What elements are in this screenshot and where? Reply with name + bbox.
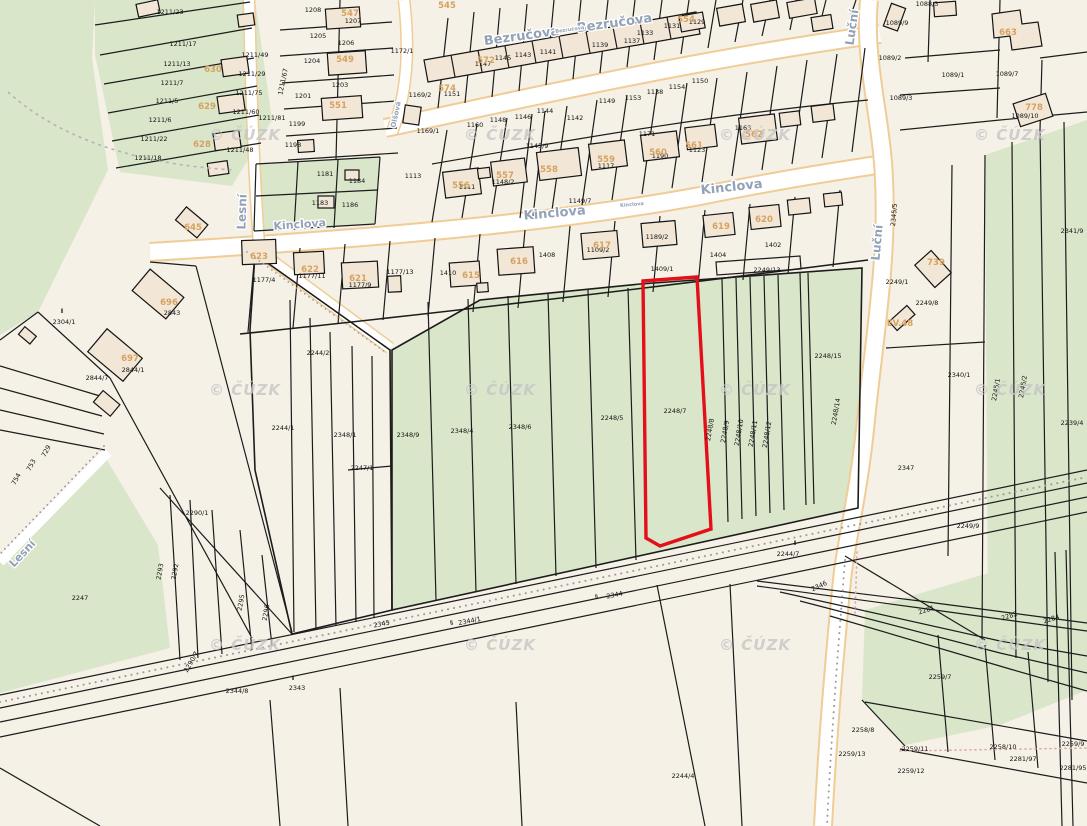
parcel-label: 2259/9 xyxy=(1062,740,1085,748)
parcel-label: 2248/15 xyxy=(814,352,841,360)
building-label: 617 xyxy=(593,241,611,251)
parcel-label: 2244/7 xyxy=(777,550,800,558)
parcel-label: 1211/5 xyxy=(156,97,179,105)
parcel-label: 2348/6 xyxy=(509,423,532,431)
parcel-label: 1177/4 xyxy=(253,276,276,284)
parcel-label: 1211/6 xyxy=(149,116,172,124)
parcel-label: 2244/4 xyxy=(672,772,695,780)
parcel-label: 1089/2 xyxy=(879,54,902,62)
parcel-label: 1211/17 xyxy=(169,40,196,48)
parcel-label: 2348/1 xyxy=(334,431,357,439)
parcel-label: 1184 xyxy=(349,177,366,185)
parcel-label: 2247 xyxy=(72,594,89,602)
building-label: 622 xyxy=(301,265,319,275)
parcel-label: 1408 xyxy=(539,251,556,259)
street-label: Lesní xyxy=(234,193,249,230)
parcel-label: 2843 xyxy=(164,309,181,317)
building-label: 554 xyxy=(677,15,695,25)
parcel-label: 2258/10 xyxy=(989,743,1016,751)
parcel-label: 1211/48 xyxy=(226,146,253,154)
building-label: 645 xyxy=(184,223,202,233)
building-label: 549 xyxy=(336,55,354,65)
parcel-label: 2259/11 xyxy=(901,745,928,753)
parcel-label: Ⅱ xyxy=(793,539,796,547)
watermark-label: © ČÚZK xyxy=(974,634,1046,654)
watermark-label: © ČÚZK xyxy=(209,634,281,654)
building-label: 558 xyxy=(540,165,558,175)
building-558 xyxy=(536,148,581,181)
parcel-label: 1198 xyxy=(285,141,302,149)
parcel-label: 2248/7 xyxy=(664,407,687,415)
parcel-label: 2249/1 xyxy=(886,278,909,286)
building-label: 697 xyxy=(121,354,139,364)
cadastral-map-viewport[interactable]: 1211/231211/171211/131211/71211/51211/61… xyxy=(0,0,1087,826)
parcel-label: 1088/3 xyxy=(916,0,939,8)
parcel-label: 2259/13 xyxy=(838,750,865,758)
parcel-label: 2344/8 xyxy=(226,687,249,695)
parcel-label: 2281/95 xyxy=(1059,764,1086,772)
parcel-label: 2304/1 xyxy=(53,318,76,326)
parcel-label: Ⅱ xyxy=(291,674,294,682)
parcel-label: Ⅱ xyxy=(60,307,63,315)
parcel-label: 1149 xyxy=(599,97,616,105)
watermark-label: © ČÚZK xyxy=(974,379,1046,399)
parcel-label: 1145 xyxy=(495,54,512,62)
parcel-label: 2341/9 xyxy=(1061,227,1084,235)
parcel-label: 1204 xyxy=(304,57,321,65)
parcel-label: 1211/7 xyxy=(161,79,184,87)
parcel-label: 1138 xyxy=(647,88,664,96)
parcel-label: 2247/1 xyxy=(351,464,374,472)
parcel-label: 1404 xyxy=(710,251,727,259)
parcel-label: 1154 xyxy=(669,83,686,91)
building-label: 696 xyxy=(160,298,178,308)
parcel-label: 1189/2 xyxy=(646,233,669,241)
parcel-label: 1144 xyxy=(537,107,554,115)
parcel-label: 1402 xyxy=(765,241,782,249)
building-label: 621 xyxy=(349,274,367,284)
cadastral-map[interactable]: 1211/231211/171211/131211/71211/51211/61… xyxy=(0,0,1087,826)
parcel-label: 1211/75 xyxy=(235,89,262,97)
parcel-label: 2258/8 xyxy=(852,726,875,734)
building-label: 556 xyxy=(452,181,470,191)
parcel-label: 1208 xyxy=(305,6,322,14)
building-label: 572 xyxy=(477,56,495,66)
building-label: EV.48 xyxy=(887,319,913,329)
parcel-label: 1133 xyxy=(637,29,654,37)
parcel-label: 1199 xyxy=(289,120,306,128)
building-label: 739 xyxy=(927,258,945,268)
parcel-label: 1148 xyxy=(490,116,507,124)
parcel-label: 1211/13 xyxy=(163,60,190,68)
parcel-label: 2844/1 xyxy=(122,366,145,374)
parcel-label: 1169/2 xyxy=(409,91,432,99)
watermark-label: © ČÚZK xyxy=(209,379,281,399)
parcel-label: 2249/8 xyxy=(916,299,939,307)
parcel-label: 1089/1 xyxy=(942,71,965,79)
parcel-label: 1211/60 xyxy=(232,108,259,116)
building-label: 630 xyxy=(204,65,222,75)
parcel-label: 1150 xyxy=(692,77,709,85)
watermark-label: © ČÚZK xyxy=(464,379,536,399)
watermark-label: © ČÚZK xyxy=(464,634,536,654)
parcel-label: 2249/9 xyxy=(957,522,980,530)
watermark-label: © ČÚZK xyxy=(464,124,536,144)
parcel-label: 2239/4 xyxy=(1061,419,1084,427)
watermark-label: © ČÚZK xyxy=(719,124,791,144)
parcel-label: 1211/81 xyxy=(258,114,285,122)
parcel-label: 1172/1 xyxy=(391,47,414,55)
parcel-label: 2347 xyxy=(898,464,915,472)
parcel-label: 2244/2 xyxy=(307,349,330,357)
parcel-label: 1186 xyxy=(342,201,359,209)
parcel-label: 1410 xyxy=(440,269,457,277)
parcel-label: 2281/97 xyxy=(1009,755,1036,763)
watermark-label: © ČÚZK xyxy=(719,634,791,654)
parcel-label: 1409/1 xyxy=(651,265,674,273)
parcel-label: 1201 xyxy=(295,92,312,100)
parcel-label: 1089/3 xyxy=(890,94,913,102)
parcel-label: 1139 xyxy=(592,41,609,49)
building-label: 629 xyxy=(198,102,216,112)
building-label: 574 xyxy=(438,84,456,94)
parcel-label: 1141 xyxy=(540,48,557,56)
parcel-label: 1137 xyxy=(624,37,641,45)
parcel-label: 1171 xyxy=(639,130,656,138)
parcel-label: 1211/23 xyxy=(156,8,183,16)
building-label: 778 xyxy=(1025,103,1043,113)
parcel-label: 1203 xyxy=(332,81,349,89)
parcel-label: 2348/4 xyxy=(451,427,474,435)
parcel-label: 1211/18 xyxy=(134,154,161,162)
parcel-label: 2259/12 xyxy=(897,767,924,775)
parcel-label: 2259/7 xyxy=(929,673,952,681)
parcel-label: 1205 xyxy=(310,32,327,40)
building-label: 623 xyxy=(250,252,268,262)
watermark-label: © ČÚZK xyxy=(974,124,1046,144)
building-label: 615 xyxy=(462,271,480,281)
watermark-label: © ČÚZK xyxy=(209,124,281,144)
parcel-label: 1089/10 xyxy=(1011,112,1038,120)
parcel-label: 2249/13 xyxy=(753,266,780,274)
parcel-label: 1183 xyxy=(312,199,329,207)
parcel-label: 1143 xyxy=(515,51,532,59)
parcel-label: 2348/9 xyxy=(397,431,420,439)
parcel-label: 1181 xyxy=(317,170,334,178)
parcel-label: 1142 xyxy=(567,114,584,122)
parcel-label: 2844/7 xyxy=(86,374,109,382)
parcel-label: 1169/1 xyxy=(417,127,440,135)
parcel-label: 2290/1 xyxy=(186,509,209,517)
parcel-label: 1153 xyxy=(625,94,642,102)
building-label: 560 xyxy=(649,148,667,158)
parcel-label: 1177/13 xyxy=(386,268,413,276)
building-label: 547 xyxy=(341,9,359,19)
building-label: 663 xyxy=(999,28,1017,38)
parcel-label: 1211/22 xyxy=(140,135,167,143)
building-label: 545 xyxy=(438,1,456,11)
parcel-label: 2248/5 xyxy=(601,414,624,422)
parcel-label: 2340/1 xyxy=(948,371,971,379)
building-label: 557 xyxy=(496,171,514,181)
parcel-label: 2244/1 xyxy=(272,424,295,432)
parcel-label: 1146 xyxy=(515,113,532,121)
parcel-label: 1113 xyxy=(405,172,422,180)
building-label: 620 xyxy=(755,215,773,225)
building-label: 561 xyxy=(685,141,703,151)
building-label: 551 xyxy=(329,101,347,111)
building-label: 619 xyxy=(712,222,730,232)
parcel-label: 1211/29 xyxy=(238,70,265,78)
building-label: 616 xyxy=(510,257,528,267)
parcel-label: 1089/9 xyxy=(886,19,909,27)
building-label: 559 xyxy=(597,155,615,165)
parcel-label: 2343 xyxy=(289,684,306,692)
watermark-label: © ČÚZK xyxy=(719,379,791,399)
parcel-label: 1206 xyxy=(338,39,355,47)
parcel-label: 1211/49 xyxy=(241,51,268,59)
parcel-label: 1089/7 xyxy=(996,70,1019,78)
